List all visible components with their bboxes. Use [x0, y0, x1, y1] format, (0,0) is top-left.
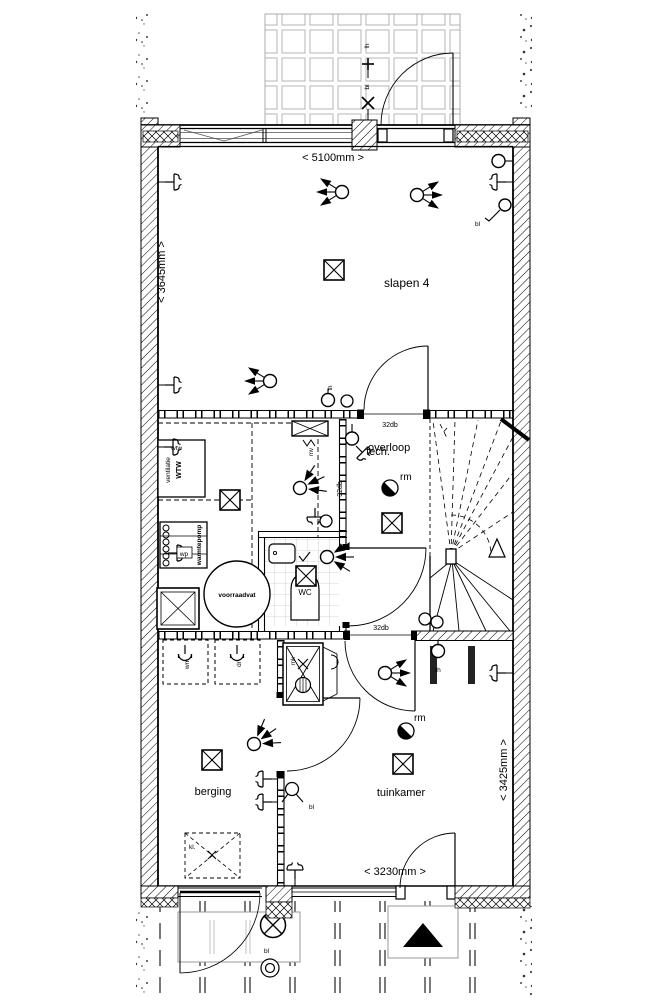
meter-cupboard-door [323, 647, 338, 701]
bl-label: bl [364, 84, 371, 90]
bedroom-window [180, 128, 352, 143]
spotlight-icon [379, 656, 412, 690]
column [468, 646, 475, 684]
wall-light-icon [419, 613, 431, 625]
stair-newel-post [446, 549, 456, 564]
spotlight-icon [411, 178, 444, 212]
crawl-hatch [185, 833, 240, 878]
dr-label: dr [236, 660, 243, 667]
wtw-label-line2: WTW [176, 461, 183, 479]
dim-right-label: < 3425mm > [498, 739, 510, 801]
dim-top-label: < 5100mm > [302, 152, 364, 164]
ceiling-light-icon [382, 513, 402, 533]
ground-spot-icon [261, 959, 279, 977]
meter-cupboard [283, 643, 338, 705]
ceiling-light-icon [202, 750, 222, 770]
dim-bottom-label: < 3230mm > [364, 866, 426, 878]
lh-label: lh [364, 43, 371, 48]
party-walls [141, 118, 530, 898]
wall-light-icon [431, 616, 443, 628]
wall-overloop-tuinkamer [158, 631, 513, 712]
thermostat-icon [432, 640, 445, 658]
room-label-tuinkamer: tuinkamer [377, 787, 426, 799]
stair-up-arrow-icon [489, 539, 505, 557]
stair-treads-upper [433, 420, 513, 555]
rm-label: rm [414, 713, 426, 724]
mv-label: mv [309, 448, 315, 456]
switch-icon [165, 377, 182, 393]
wall-light-bl-icon [282, 783, 303, 803]
ceiling-light-icon [220, 490, 240, 510]
balcony [265, 14, 460, 125]
vent-valve-icon [303, 440, 315, 446]
room-label-overloop: overloop [368, 442, 410, 454]
buffer-tank-label: voorraadvat [218, 592, 256, 599]
wall-light-icon [346, 424, 359, 445]
wall-slapen4-overloop [158, 346, 513, 419]
wm-label: wm [184, 659, 191, 670]
ceiling-light-icon [324, 260, 344, 280]
washer-dryer-positions [163, 640, 260, 684]
electrical-symbols [158, 155, 513, 887]
switch-icon [490, 174, 507, 190]
spotlight-icon [287, 460, 332, 507]
wall-light-icon [341, 395, 353, 407]
thermostat-icon [322, 389, 335, 407]
acoustic-label: 32db [373, 625, 389, 632]
room-label-slapen4: slapen 4 [384, 276, 430, 290]
acoustic-label: 32db [337, 481, 344, 497]
wc-sink [269, 544, 295, 563]
switch-icon [287, 863, 303, 880]
th-label: th [328, 385, 334, 390]
bl-label: bl [475, 221, 481, 228]
room-label-berging: berging [195, 786, 232, 798]
mech-vent-unit [292, 421, 328, 446]
kl-label: kl. [189, 844, 196, 851]
switch-icon [490, 665, 507, 681]
acoustic-label: 32db [382, 422, 398, 429]
spotlight-icon [244, 364, 277, 398]
floorplan-canvas: < 5100mm > < 3645mm > < 3425mm > < 3230m… [0, 0, 667, 1000]
duct-shaft [157, 588, 199, 629]
washer-outlet-icon [179, 645, 192, 661]
balcony-door-frame [377, 129, 455, 143]
wall-light-icon [320, 515, 332, 527]
spotlight-icon [238, 714, 286, 762]
ceiling-light-icon [393, 754, 413, 774]
terrace-paving [158, 893, 513, 996]
wall-light-bl-icon [485, 199, 511, 221]
berging-window [178, 888, 262, 897]
smoke-detector-icon [398, 723, 414, 739]
switch-icon [256, 794, 273, 810]
slapen4-door [357, 346, 430, 419]
switch-icon [256, 771, 273, 787]
rm-label: rm [400, 472, 412, 483]
wtw-label-line1: ventilatie [165, 457, 172, 483]
wp-switch-label: wp [179, 551, 189, 558]
wtw-switch-label: wtw [170, 445, 183, 452]
wall-light-icon [492, 155, 513, 168]
facade-pier [352, 120, 377, 150]
mk-label: mk [291, 656, 297, 665]
dryer-outlet-icon [231, 645, 244, 661]
spotlight-icon [316, 175, 349, 209]
smoke-detector-icon [382, 480, 398, 496]
top-facade [141, 120, 530, 150]
th-label: th [435, 667, 441, 674]
heatpump-label: warmtepomp [196, 525, 203, 566]
room-label-wc: WC [298, 588, 312, 597]
wc-door [343, 544, 427, 628]
ceiling-light-icon [296, 566, 316, 586]
dim-left-label: < 3645mm > [156, 241, 168, 303]
bl-label: bl [264, 948, 270, 955]
labels-layer: < 5100mm > < 3645mm > < 3425mm > < 3230m… [156, 43, 510, 955]
switch-icon [165, 174, 182, 190]
floorplan-drawing: < 5100mm > < 3645mm > < 3425mm > < 3230m… [0, 0, 667, 1000]
bl-label: bl [309, 804, 315, 811]
